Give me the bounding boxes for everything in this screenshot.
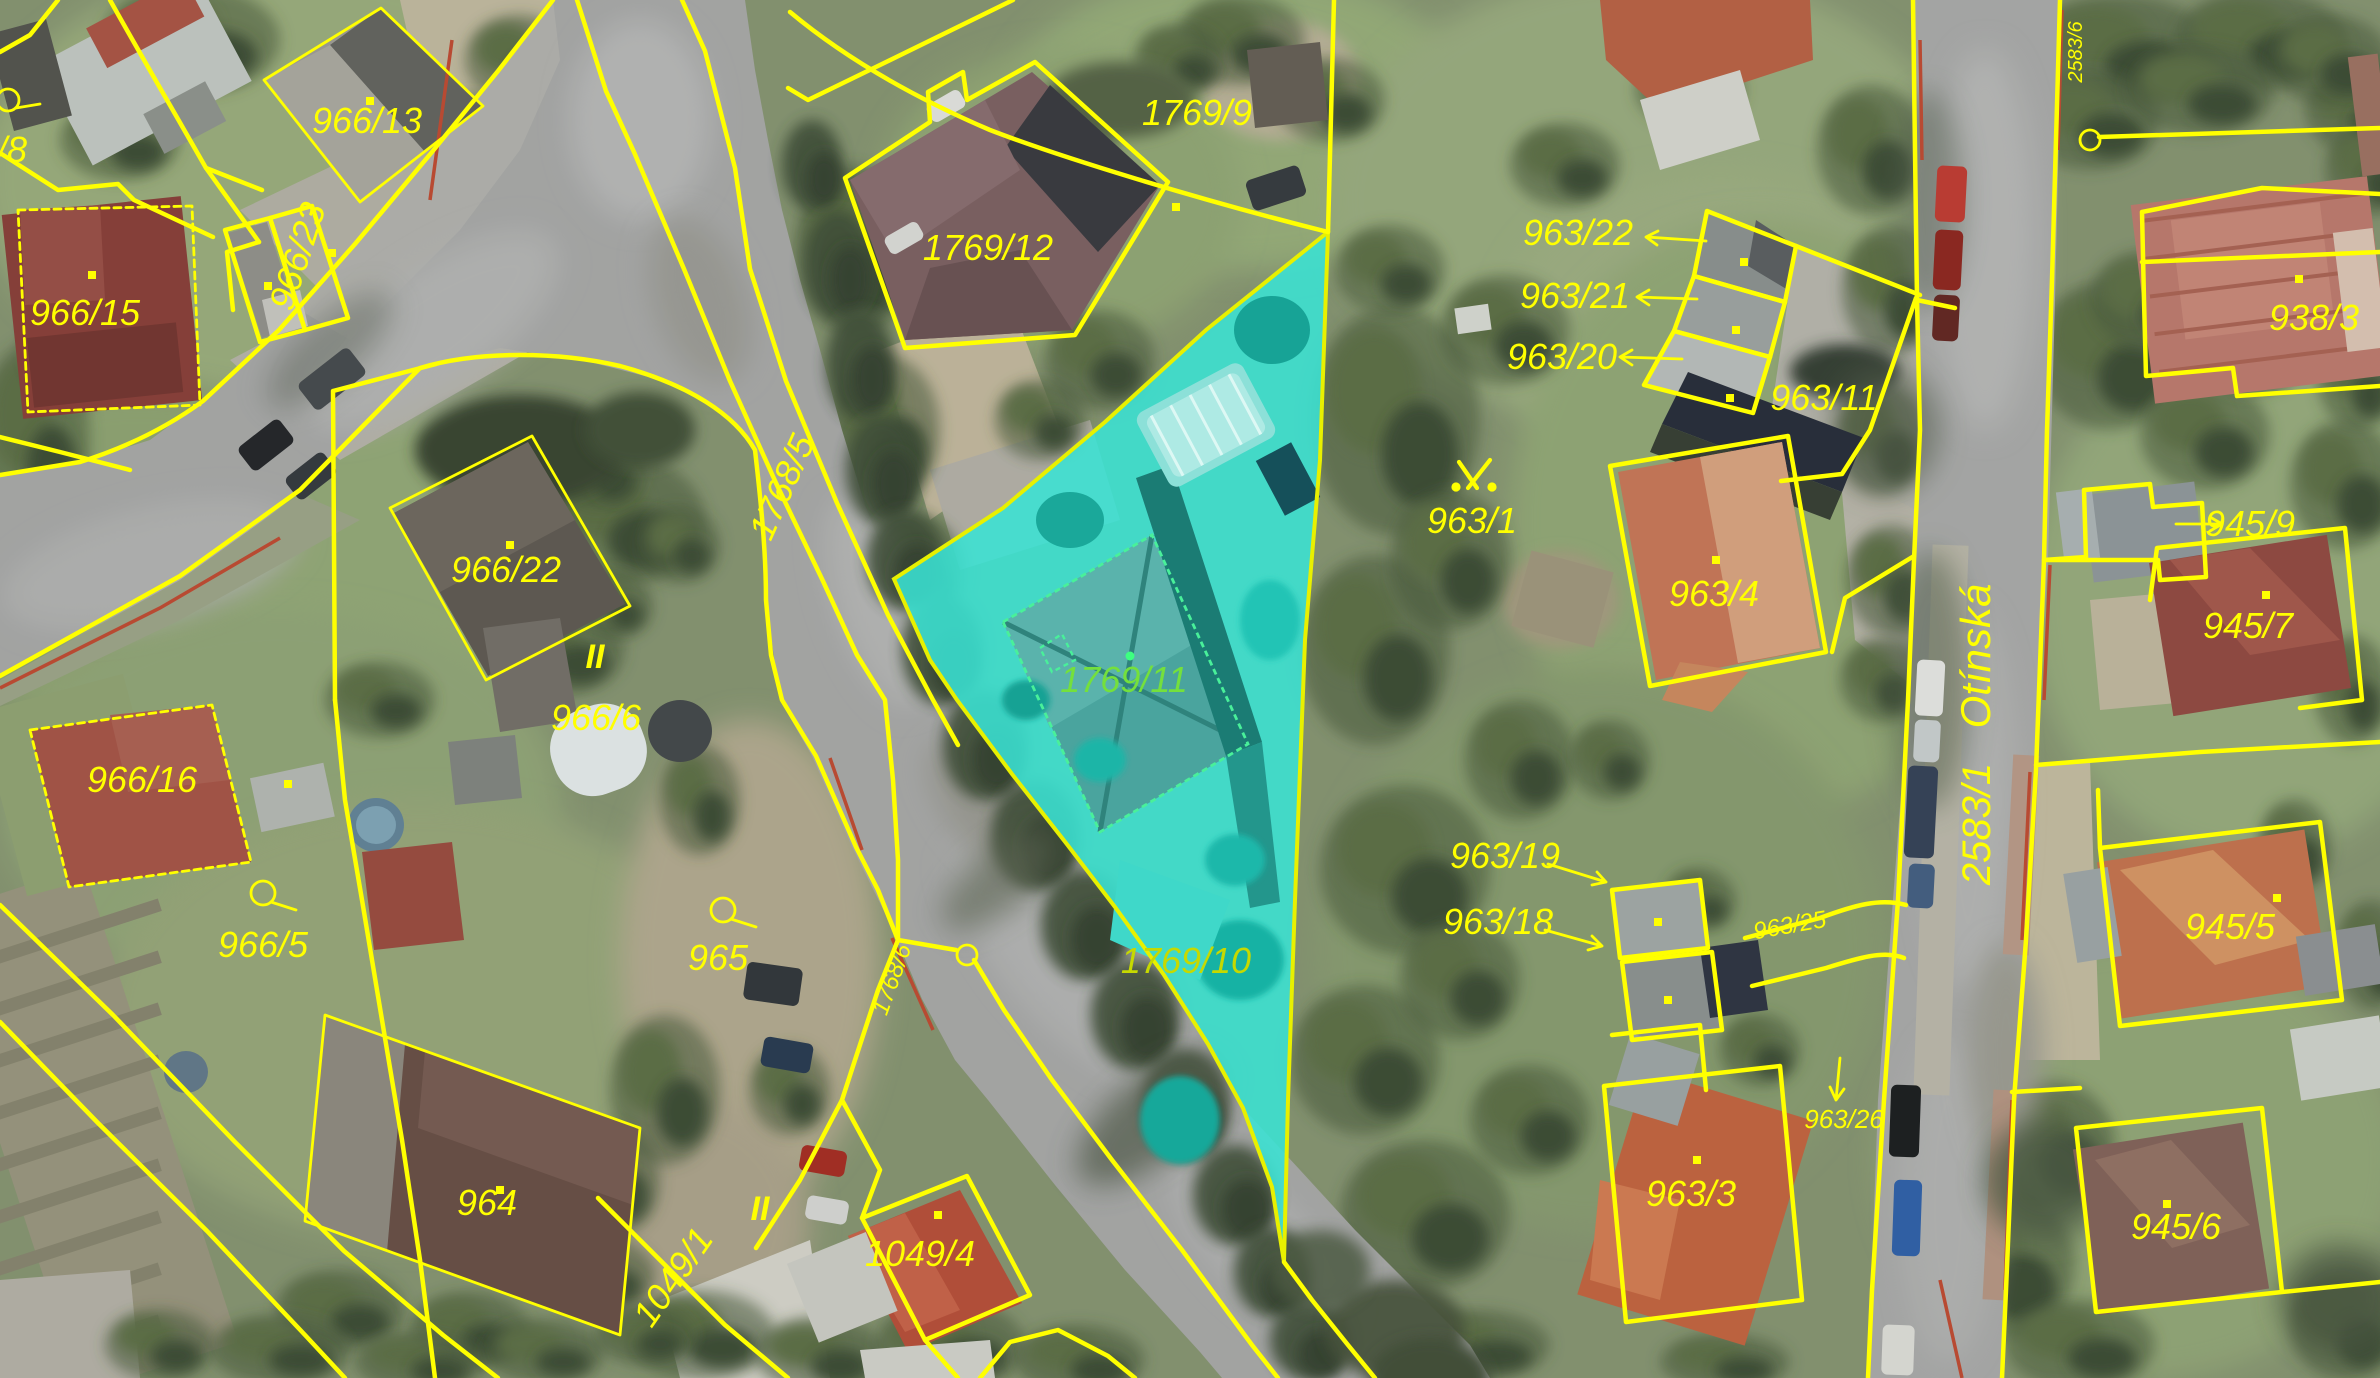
svg-text:945/6: 945/6 — [2131, 1206, 2222, 1247]
svg-text:963/26: 963/26 — [1804, 1104, 1884, 1134]
svg-text:966/15: 966/15 — [30, 292, 141, 333]
svg-text:963/20: 963/20 — [1507, 336, 1617, 377]
svg-text:1769/9: 1769/9 — [1142, 92, 1252, 133]
svg-text:1769/11: 1769/11 — [1060, 659, 1187, 700]
svg-text:Otínská: Otínská — [1952, 584, 1999, 729]
svg-text:966/5: 966/5 — [218, 924, 309, 965]
svg-text:945/9: 945/9 — [2205, 503, 2295, 544]
svg-text:963/3: 963/3 — [1646, 1173, 1736, 1214]
svg-text:963/1: 963/1 — [1427, 500, 1517, 541]
svg-text:1049/4: 1049/4 — [865, 1233, 975, 1274]
svg-text:966/13: 966/13 — [312, 100, 422, 141]
svg-text:964: 964 — [457, 1182, 517, 1223]
svg-text:1769/12: 1769/12 — [923, 227, 1053, 268]
svg-text:966/22: 966/22 — [451, 549, 561, 590]
svg-text:2583/6: 2583/6 — [2065, 21, 2087, 84]
svg-text:/8: /8 — [0, 129, 27, 170]
svg-text:2583/1: 2583/1 — [1955, 763, 1999, 886]
svg-text:II: II — [586, 638, 606, 676]
svg-text:1769/10: 1769/10 — [1121, 940, 1251, 981]
svg-text:963/18: 963/18 — [1443, 901, 1553, 942]
svg-text:963/22: 963/22 — [1523, 212, 1633, 253]
svg-text:963/11: 963/11 — [1770, 377, 1877, 418]
svg-text:963/19: 963/19 — [1450, 835, 1560, 876]
svg-text:945/7: 945/7 — [2203, 605, 2295, 646]
svg-text:965: 965 — [688, 937, 749, 978]
svg-text:963/4: 963/4 — [1669, 573, 1759, 614]
svg-text:II: II — [751, 1190, 771, 1228]
svg-text:966/6: 966/6 — [551, 697, 642, 738]
svg-text:945/5: 945/5 — [2185, 906, 2276, 947]
svg-text:963/21: 963/21 — [1520, 275, 1630, 316]
svg-text:938/3: 938/3 — [2269, 297, 2359, 338]
svg-text:966/16: 966/16 — [87, 759, 198, 800]
